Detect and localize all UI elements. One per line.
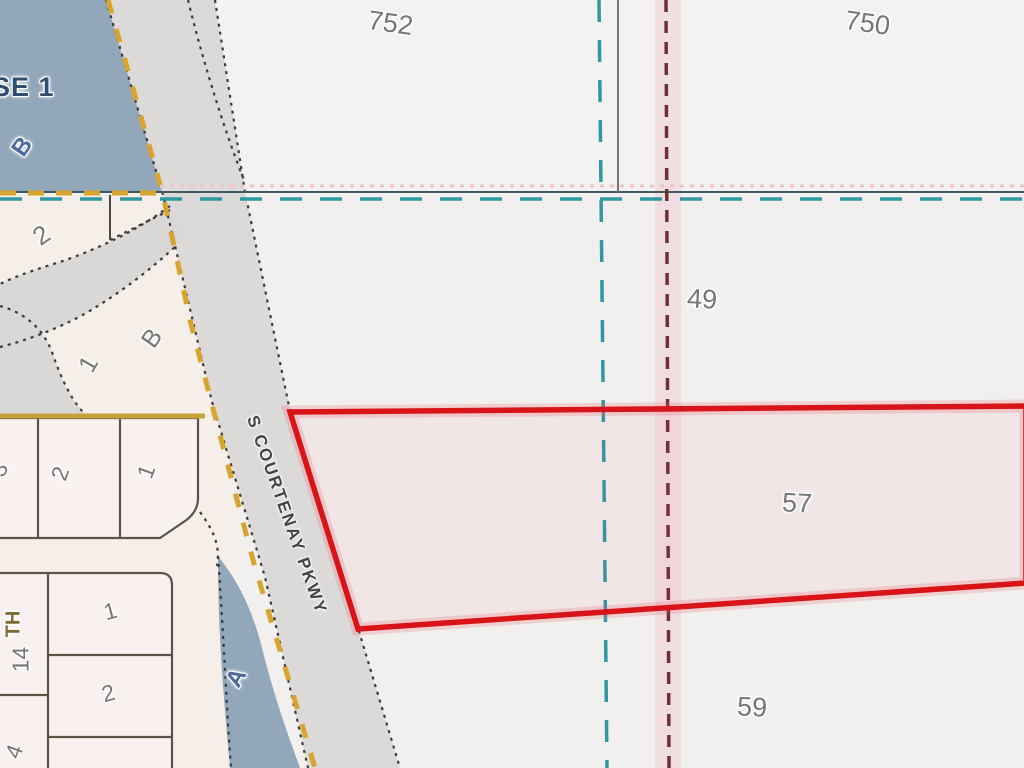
parcel-750-label: 750 [843, 7, 891, 40]
parcel-752-label: 752 [366, 7, 414, 40]
lot-14-label: 14 [9, 647, 32, 673]
parcel-map: SE 1 B 752 750 49 57 59 2 1 B 3 2 1 TH 1… [0, 0, 1024, 768]
parcel-57-label: 57 [781, 489, 812, 518]
lot-block-1-fill [0, 418, 198, 538]
phase-label: SE 1 [0, 74, 55, 101]
map-canvas [0, 0, 1024, 768]
parcel-59-label: 59 [736, 693, 767, 722]
selected-parcel-glow [290, 406, 1024, 629]
parcel-49-label: 49 [686, 285, 717, 314]
street-th-label: TH [3, 611, 23, 638]
